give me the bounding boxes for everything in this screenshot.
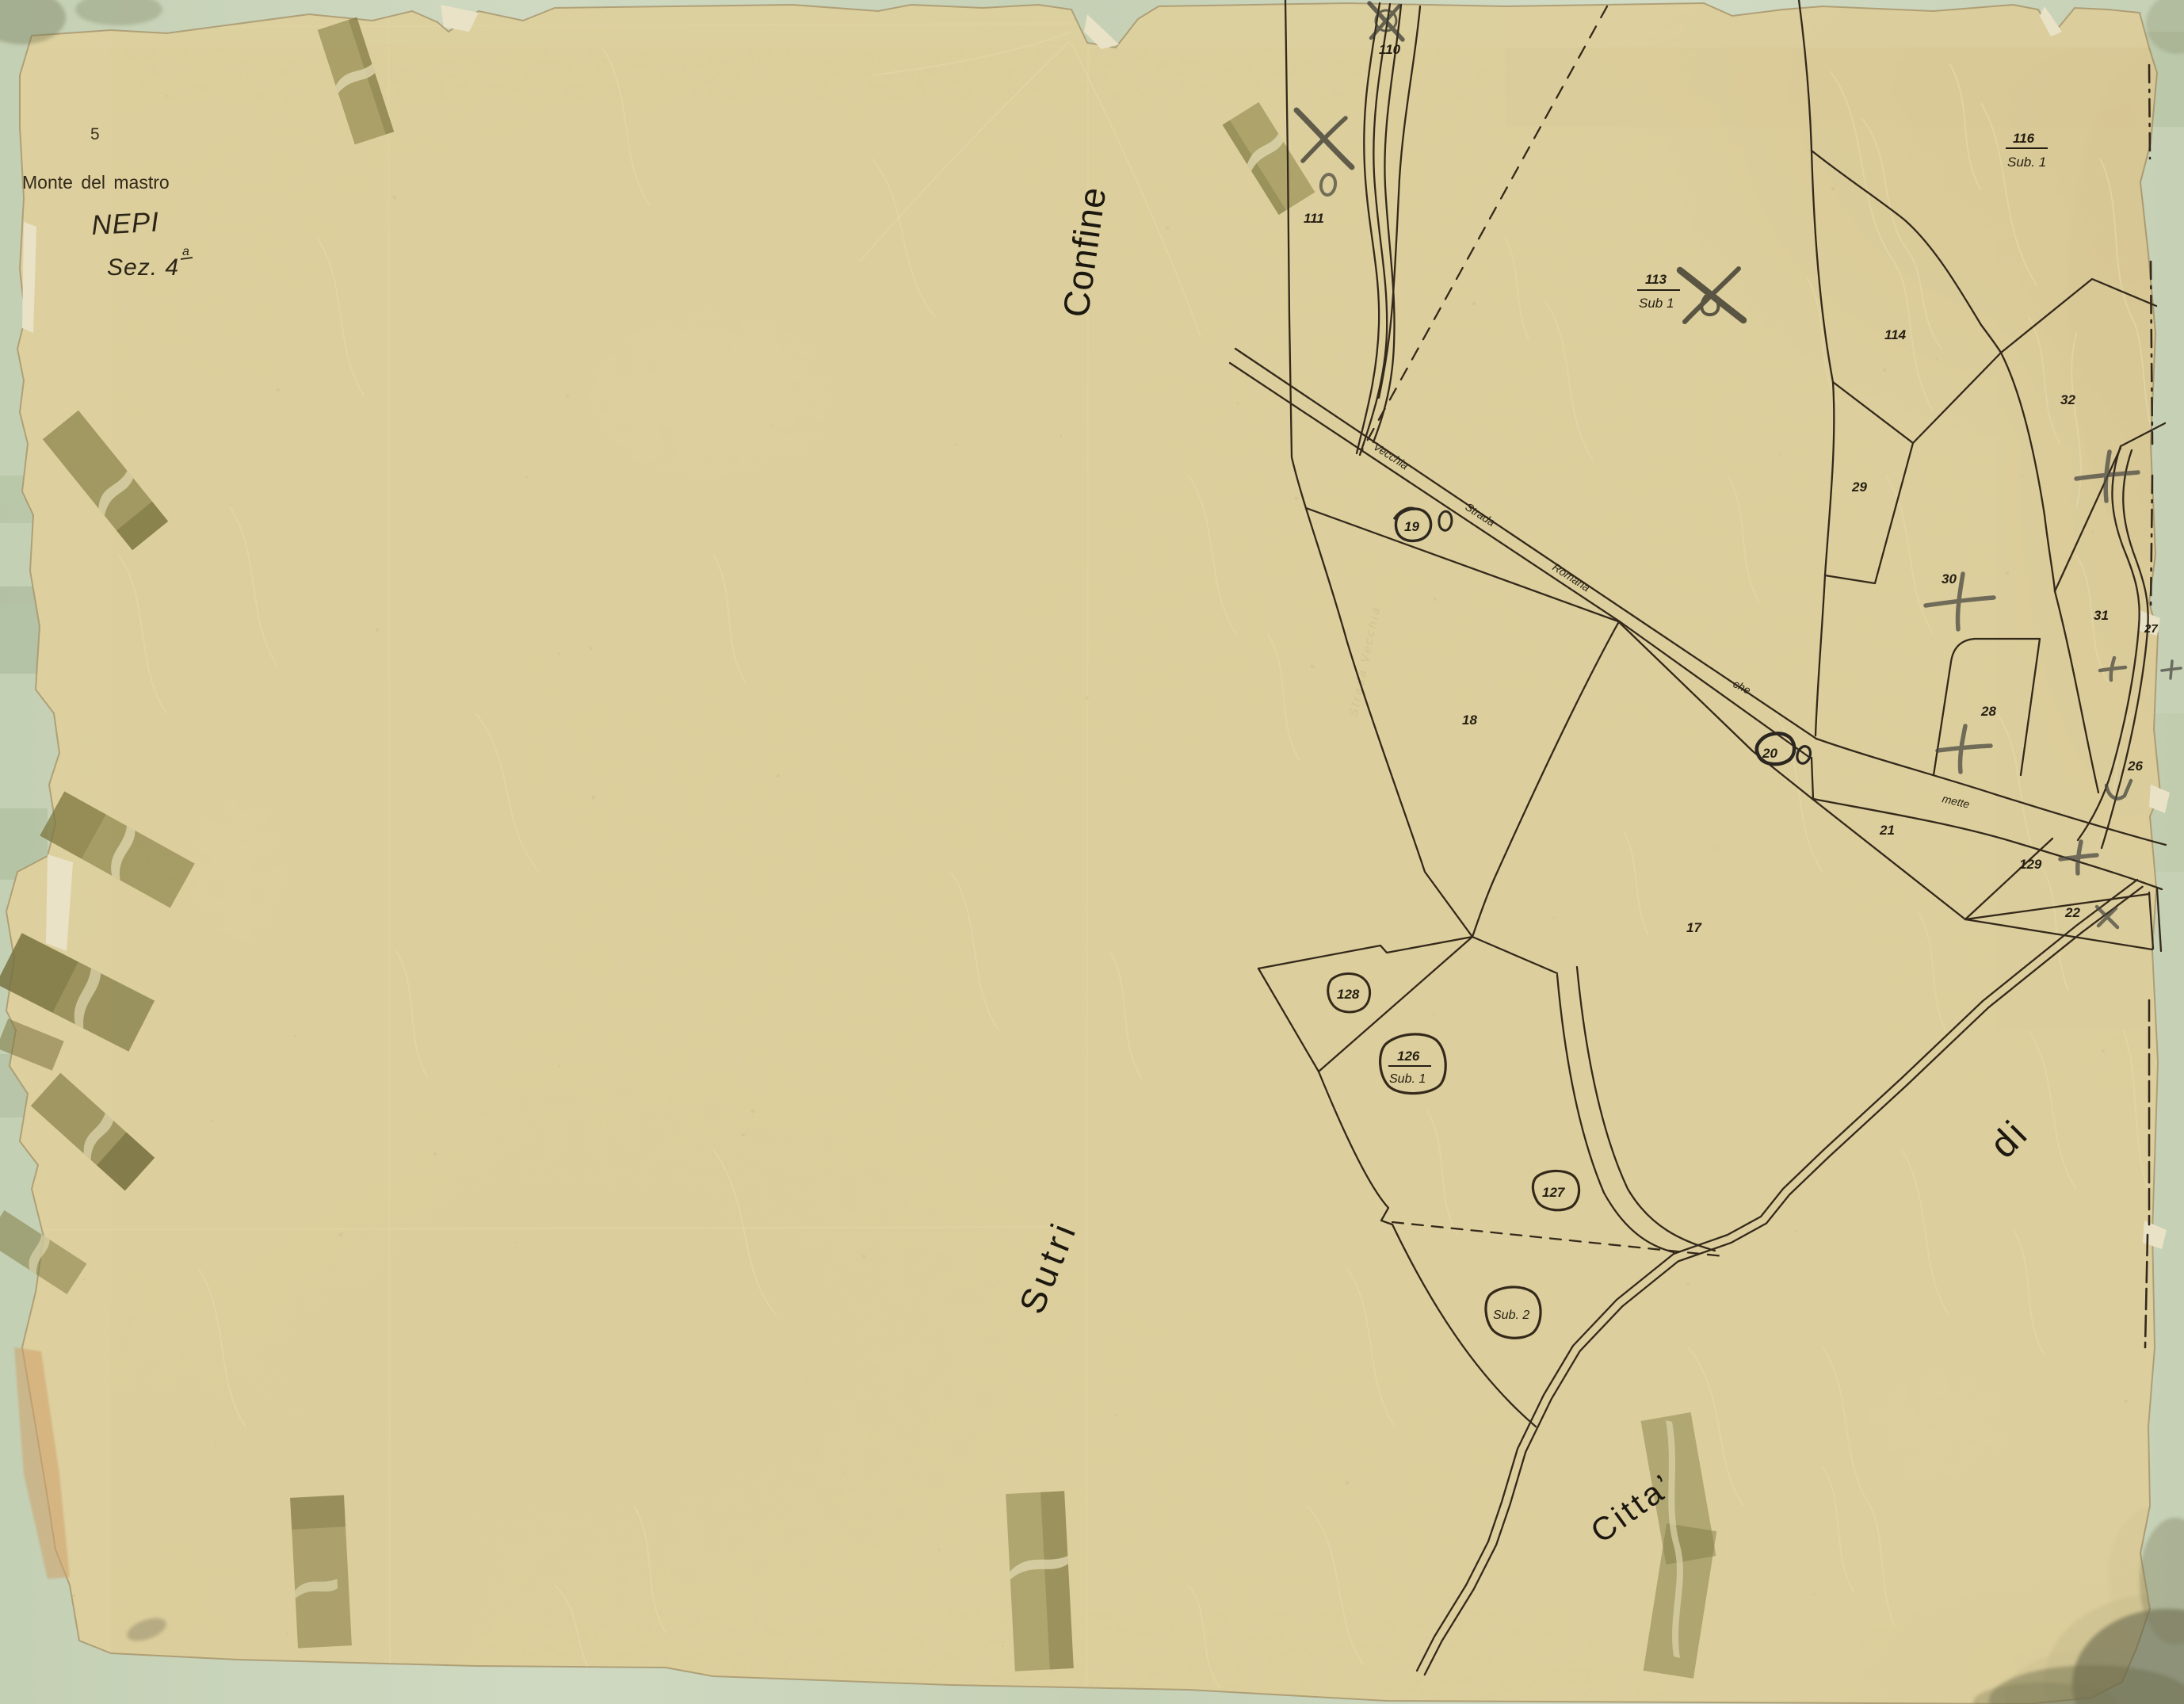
svg-text:32: 32	[2060, 392, 2075, 407]
svg-text:114: 114	[1884, 327, 1907, 342]
svg-text:Sub. 1: Sub. 1	[1389, 1072, 1426, 1086]
svg-text:21: 21	[1879, 823, 1895, 838]
svg-text:126: 126	[1397, 1049, 1420, 1064]
svg-text:110: 110	[1379, 42, 1401, 57]
svg-text:a: a	[182, 245, 189, 258]
svg-text:20: 20	[1762, 746, 1777, 761]
svg-text:5: 5	[90, 125, 100, 143]
svg-text:Sez. 4: Sez. 4	[107, 254, 179, 281]
svg-text:30: 30	[1942, 571, 1957, 586]
svg-text:129: 129	[2019, 857, 2042, 872]
svg-text:28: 28	[1980, 704, 1996, 719]
svg-text:111: 111	[1304, 211, 1324, 226]
svg-text:29: 29	[1851, 479, 1867, 495]
svg-text:18: 18	[1462, 713, 1477, 728]
svg-text:Monte del mastro: Monte del mastro	[22, 172, 170, 193]
svg-text:116: 116	[2013, 131, 2035, 146]
svg-text:127: 127	[1542, 1185, 1566, 1200]
svg-text:Sub. 1: Sub. 1	[2007, 155, 2046, 170]
svg-text:113: 113	[1645, 272, 1667, 287]
svg-text:27: 27	[2144, 622, 2158, 636]
svg-text:Sub. 2: Sub. 2	[1493, 1309, 1529, 1322]
svg-text:26: 26	[2127, 758, 2143, 774]
svg-text:17: 17	[1686, 920, 1702, 935]
svg-text:31: 31	[2094, 608, 2109, 623]
svg-text:128: 128	[1337, 987, 1360, 1002]
svg-text:Sub 1: Sub 1	[1639, 296, 1674, 311]
svg-text:NEPI: NEPI	[90, 207, 160, 241]
svg-text:22: 22	[2064, 905, 2080, 920]
svg-text:19: 19	[1404, 519, 1419, 534]
